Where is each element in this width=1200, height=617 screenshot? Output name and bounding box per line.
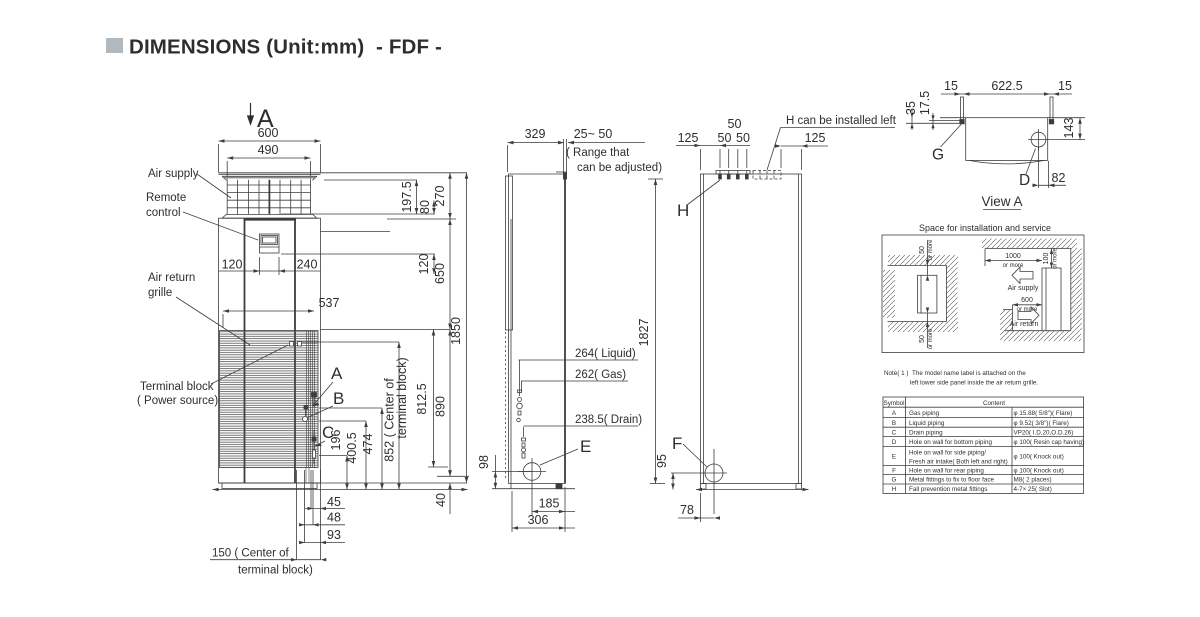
svg-text:or more: or more <box>928 328 934 349</box>
svg-text:Note( 1 ) The model name labe: Note( 1 ) The model name label is attach… <box>884 370 1026 377</box>
svg-text:Fall prevention metal fittings: Fall prevention metal fittings <box>909 486 987 493</box>
svg-text:40: 40 <box>434 493 448 507</box>
svg-text:Metal fittings to fix to floor: Metal fittings to fix to floor face <box>909 477 995 484</box>
svg-text:C: C <box>892 429 897 436</box>
svg-text:F: F <box>672 434 682 453</box>
svg-text:100: 100 <box>1043 253 1050 265</box>
svg-text:1850: 1850 <box>449 317 463 345</box>
svg-text:80: 80 <box>418 200 432 214</box>
svg-text:control: control <box>146 207 181 219</box>
svg-text:D: D <box>1019 172 1030 189</box>
svg-text:95: 95 <box>655 454 669 468</box>
svg-text:φ 100( Knock out): φ 100( Knock out) <box>1014 454 1064 461</box>
svg-text:E: E <box>580 437 591 456</box>
svg-text:98: 98 <box>477 455 491 469</box>
svg-text:A: A <box>331 364 343 383</box>
svg-text:φ 9.52( 3/8")( Flare): φ 9.52( 3/8")( Flare) <box>1014 420 1069 427</box>
svg-text:35: 35 <box>904 101 918 115</box>
svg-text:B: B <box>333 389 344 408</box>
svg-text:120: 120 <box>222 258 243 272</box>
svg-text:Remote: Remote <box>146 192 186 204</box>
svg-text:Hole on wall for bottom piping: Hole on wall for bottom piping <box>909 439 992 446</box>
svg-text:50: 50 <box>718 131 732 145</box>
svg-text:Fresh air intake( Both left an: Fresh air intake( Both left and right) <box>909 459 1008 466</box>
svg-text:terminal block): terminal block) <box>395 357 409 438</box>
svg-text:E: E <box>892 454 896 461</box>
svg-text:150 ( Center of: 150 ( Center of <box>212 548 290 560</box>
svg-text:Terminal block: Terminal block <box>140 381 214 393</box>
svg-text:812.5: 812.5 <box>415 383 429 414</box>
svg-text:G: G <box>892 477 897 484</box>
svg-text:537: 537 <box>319 296 340 310</box>
svg-text:Liquid piping: Liquid piping <box>909 420 945 427</box>
svg-text:48: 48 <box>327 511 341 525</box>
svg-text:45: 45 <box>327 495 341 509</box>
svg-text:Air supply: Air supply <box>148 168 199 180</box>
svg-text:50: 50 <box>919 246 926 254</box>
svg-text:78: 78 <box>680 503 694 517</box>
svg-text:D: D <box>892 439 897 446</box>
svg-text:View A: View A <box>981 194 1022 209</box>
svg-text:622.5: 622.5 <box>991 79 1022 93</box>
svg-text:264( Liquid): 264( Liquid) <box>575 348 636 360</box>
svg-text:600: 600 <box>258 126 279 140</box>
svg-text:474: 474 <box>361 434 375 455</box>
svg-text:890: 890 <box>434 396 448 417</box>
svg-text:grille: grille <box>148 287 172 299</box>
svg-text:1000: 1000 <box>1005 253 1021 260</box>
svg-text:238.5( Drain): 238.5( Drain) <box>575 414 642 426</box>
svg-text:15: 15 <box>944 79 958 93</box>
svg-text:185: 185 <box>539 497 560 511</box>
svg-text:25~ 50: 25~ 50 <box>574 127 613 141</box>
svg-text:or more: or more <box>1053 248 1059 269</box>
svg-text:Air return: Air return <box>148 272 195 284</box>
svg-text:240: 240 <box>297 258 318 272</box>
svg-text:or more: or more <box>928 239 934 260</box>
svg-text:can be adjusted): can be adjusted) <box>577 162 662 174</box>
svg-text:M8( 2 places): M8( 2 places) <box>1014 477 1052 484</box>
svg-text:φ 100( Resin cap having): φ 100( Resin cap having) <box>1014 439 1085 446</box>
svg-text:B: B <box>892 420 896 427</box>
svg-text:H: H <box>677 201 689 220</box>
svg-text:17.5: 17.5 <box>918 91 932 115</box>
svg-text:( Range that: ( Range that <box>566 147 630 159</box>
svg-text:196: 196 <box>329 430 343 451</box>
svg-text:400.5: 400.5 <box>345 432 359 463</box>
svg-text:Air return: Air return <box>1010 321 1039 328</box>
svg-text:G: G <box>932 147 944 164</box>
svg-text:VP20( I.D.20,O.D.26): VP20( I.D.20,O.D.26) <box>1014 429 1074 436</box>
svg-text:50: 50 <box>728 117 742 131</box>
svg-text:270: 270 <box>433 186 447 207</box>
svg-text:Air supply: Air supply <box>1008 285 1039 292</box>
svg-text:93: 93 <box>327 528 341 542</box>
svg-text:50: 50 <box>736 131 750 145</box>
svg-text:329: 329 <box>525 127 546 141</box>
svg-text:50: 50 <box>919 335 926 343</box>
svg-text:H can be installed left: H can be installed left <box>786 115 897 127</box>
svg-text:left lower side panel inside t: left lower side panel inside the air ret… <box>910 380 1038 387</box>
svg-text:262( Gas): 262( Gas) <box>575 369 626 381</box>
svg-text:or more: or more <box>1017 307 1038 313</box>
svg-text:or more: or more <box>1003 263 1024 269</box>
svg-text:1827: 1827 <box>637 319 651 347</box>
svg-text:125: 125 <box>805 131 826 145</box>
svg-text:143: 143 <box>1062 118 1076 139</box>
svg-text:15: 15 <box>1058 79 1072 93</box>
svg-text:( Power source): ( Power source) <box>137 395 218 407</box>
svg-text:306: 306 <box>528 513 549 527</box>
svg-text:terminal block): terminal block) <box>238 565 313 577</box>
svg-text:490: 490 <box>258 143 279 157</box>
svg-text:φ 100( Knock out): φ 100( Knock out) <box>1014 467 1064 474</box>
svg-text:Hole on wall for rear piping: Hole on wall for rear piping <box>909 467 984 474</box>
svg-text:197.5: 197.5 <box>400 181 414 212</box>
svg-text:DIMENSIONS (Unit:mm) - FDF -: DIMENSIONS (Unit:mm) - FDF - <box>129 36 442 59</box>
svg-text:125: 125 <box>678 131 699 145</box>
svg-text:Symbol: Symbol <box>884 400 905 407</box>
svg-text:Gas piping: Gas piping <box>909 410 940 417</box>
svg-text:650: 650 <box>433 263 447 284</box>
svg-text:Hole on wall for side piping/: Hole on wall for side piping/ <box>909 450 986 457</box>
svg-text:Content: Content <box>983 400 1005 407</box>
svg-text:Space for installation and ser: Space for installation and service <box>919 223 1051 233</box>
svg-text:82: 82 <box>1052 171 1066 185</box>
svg-text:φ 15.88( 5/8")( Flare): φ 15.88( 5/8")( Flare) <box>1014 410 1073 417</box>
svg-text:Drain piping: Drain piping <box>909 429 943 436</box>
svg-text:H: H <box>892 486 897 493</box>
svg-text:4-7× 25( Slot): 4-7× 25( Slot) <box>1014 486 1052 493</box>
svg-text:600: 600 <box>1021 297 1033 304</box>
svg-text:F: F <box>892 467 896 474</box>
svg-text:120: 120 <box>417 254 431 275</box>
